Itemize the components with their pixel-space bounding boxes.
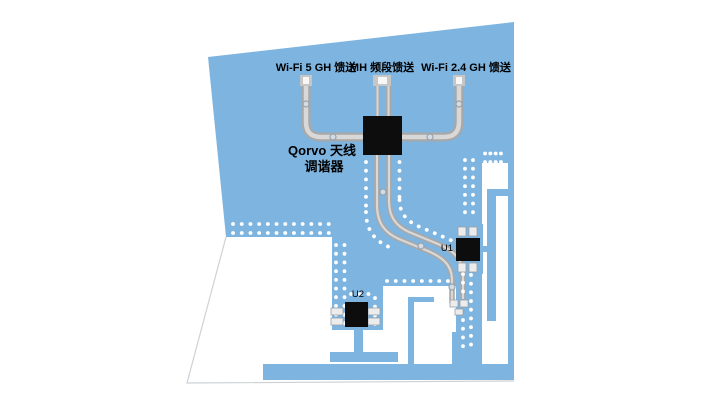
pcb-diagram-canvas: Wi-Fi 5 GH 馈送 MH 频段馈送 Wi-Fi 2.4 GH 馈送 Qo… — [0, 0, 720, 405]
l-antenna-vertical — [408, 297, 414, 364]
l-antenna-arm — [408, 297, 434, 302]
mh-feed-label: MH 频段馈送 — [350, 60, 415, 74]
wifi24-feed-label: Wi-Fi 2.4 GH 馈送 — [421, 60, 512, 74]
u2-ref-label: U2 — [352, 289, 364, 300]
pcb-layout-diagram: Wi-Fi 5 GH 馈送 MH 频段馈送 Wi-Fi 2.4 GH 馈送 Qo… — [0, 0, 720, 405]
qorvo-tuner-chip — [363, 116, 402, 155]
u1-output-trace — [479, 246, 489, 252]
u2-feed-stem — [354, 327, 363, 354]
u2-chip — [345, 302, 368, 327]
j-antenna-vertical — [487, 189, 496, 321]
t-antenna-crossbar — [330, 352, 398, 362]
tuner-label-line1: Qorvo 天线 — [288, 143, 356, 158]
u1-chip — [456, 238, 480, 261]
u1-ref-label: U1 — [441, 243, 453, 254]
tuner-label-line2: 调谐器 — [304, 159, 344, 174]
wifi5-feed-label: Wi-Fi 5 GH 馈送 — [276, 60, 358, 74]
bottom-ground-bar — [263, 364, 514, 380]
